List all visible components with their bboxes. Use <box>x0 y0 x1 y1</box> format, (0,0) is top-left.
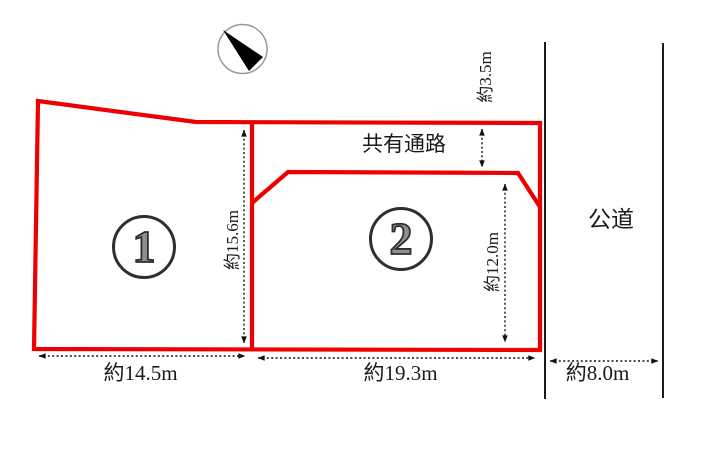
parcel-2-depth-label: 約12.0m <box>483 207 503 317</box>
parcel-2-badge: 2 <box>369 207 433 271</box>
shared-passage-label: 共有通路 <box>346 133 462 155</box>
parcel-1-number: 1 <box>133 218 156 276</box>
lot-diagram: 1 2 共有通路 公道 約14.5m 約19.3m 約8.0m 約3.5m 約1… <box>0 0 710 465</box>
parcel-1-depth-label: 約15.6m <box>223 185 243 295</box>
parcel-1-badge: 1 <box>112 215 176 279</box>
road-width-label: 約8.0m <box>540 362 655 384</box>
public-road-label: 公道 <box>563 208 659 232</box>
shared-passage-boundary <box>252 172 540 207</box>
parcel-outline <box>34 101 540 350</box>
passage-width-label: 約3.5m <box>476 22 496 132</box>
north-arrow-icon <box>218 25 267 74</box>
diagram-canvas <box>0 0 710 465</box>
parcel-1-frontage-label: 約14.5m <box>78 362 203 384</box>
parcel-2-number: 2 <box>390 210 413 268</box>
parcel-2-frontage-label: 約19.3m <box>338 362 463 384</box>
